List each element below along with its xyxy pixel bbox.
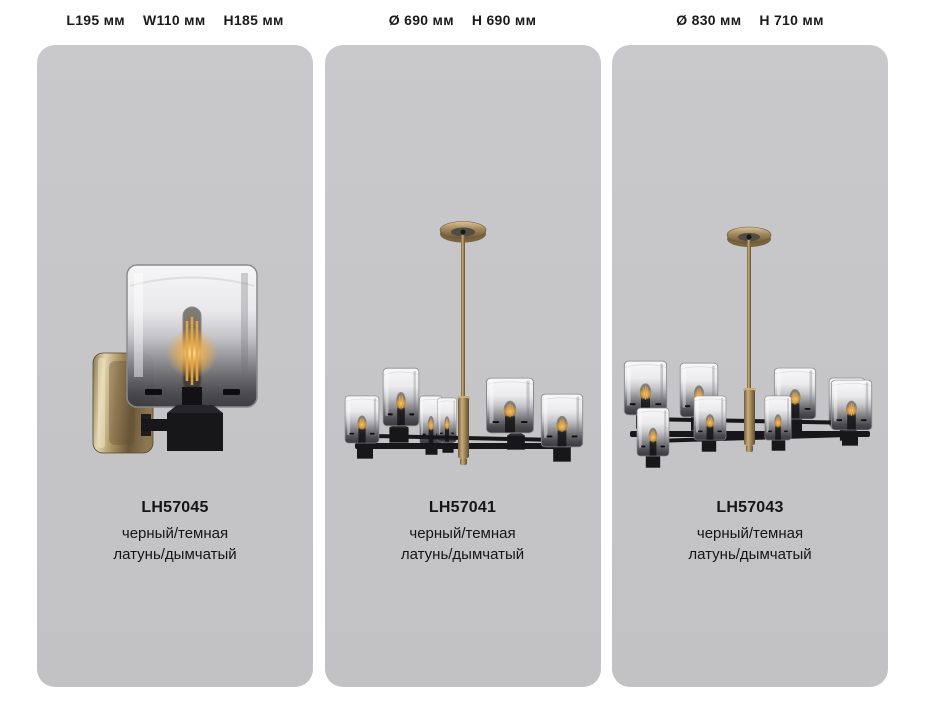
product-finish-line1: черный/темная [612,523,888,544]
dimensions-row: Ø 830 мм H 710 мм [612,0,888,45]
catalog-page: L195 мм W110 мм H185 мм [0,0,925,720]
product-column-sconce: L195 мм W110 мм H185 мм [37,0,313,687]
product-code: LH57041 [325,499,601,517]
dimension-label-diameter: Ø 830 мм [676,12,741,28]
product-card[interactable]: LH57041 черный/темная латунь/дымчатый [325,45,601,687]
dimension-label-length: L195 мм [66,12,125,28]
product-code: LH57045 [37,499,313,517]
product-finish-line1: черный/темная [37,523,313,544]
product-info: LH57043 черный/темная латунь/дымчатый [612,499,888,565]
product-finish-line2: латунь/дымчатый [37,544,313,565]
wall-sconce-image [37,45,313,687]
dimension-label-height: H 690 мм [472,12,536,28]
dimensions-row: L195 мм W110 мм H185 мм [37,0,313,45]
chandelier-8-light-image [612,45,888,687]
dimension-label-diameter: Ø 690 мм [389,12,454,28]
products-row: L195 мм W110 мм H185 мм [0,0,925,687]
product-finish-line1: черный/темная [325,523,601,544]
dimension-label-height: H185 мм [223,12,283,28]
dimension-label-height: H 710 мм [759,12,823,28]
product-info: LH57045 черный/темная латунь/дымчатый [37,499,313,565]
product-code: LH57043 [612,499,888,517]
product-column-chandelier-6: Ø 690 мм H 690 мм [325,0,601,687]
product-card[interactable]: LH57043 черный/темная латунь/дымчатый [612,45,888,687]
product-finish-line2: латунь/дымчатый [325,544,601,565]
product-column-chandelier-8: Ø 830 мм H 710 мм [612,0,888,687]
chandelier-6-light-image [325,45,601,687]
dimensions-row: Ø 690 мм H 690 мм [325,0,601,45]
product-info: LH57041 черный/темная латунь/дымчатый [325,499,601,565]
product-finish-line2: латунь/дымчатый [612,544,888,565]
product-card[interactable]: LH57045 черный/темная латунь/дымчатый [37,45,313,687]
dimension-label-width: W110 мм [143,12,206,28]
